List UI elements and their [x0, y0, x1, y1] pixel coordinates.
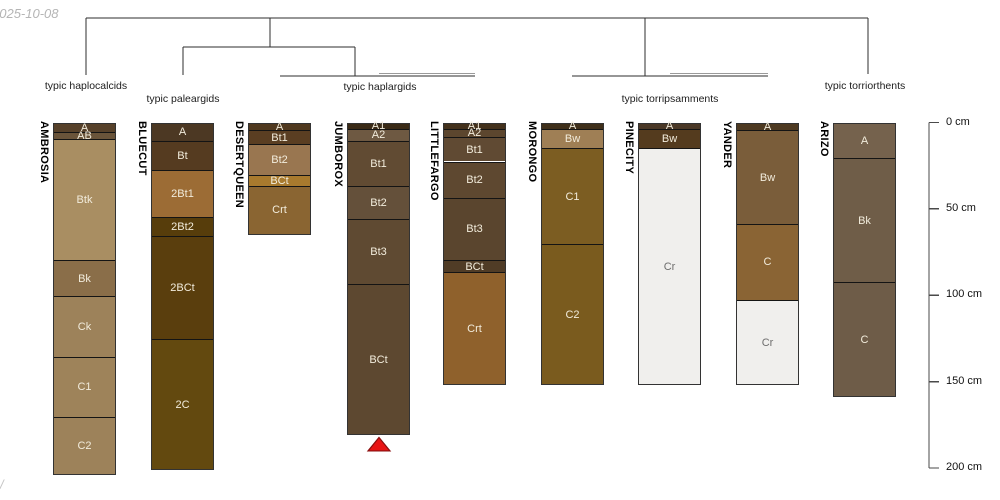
date-watermark: 2025-10-08: [0, 6, 59, 21]
depth-tick-label: 50 cm: [946, 202, 976, 214]
horizon-desertqueen-a: A: [249, 124, 310, 131]
horizon-label: 2C: [175, 399, 189, 411]
profile-column-pinecity: ABwCr: [638, 123, 701, 386]
horizon-label: Cr: [664, 261, 676, 273]
horizon-bluecut-2bt1: 2Bt1: [152, 170, 213, 217]
horizon-label: Bt2: [370, 197, 387, 209]
horizon-label: A: [764, 121, 771, 133]
profile-column-jumborox: A1A2Bt1Bt2Bt3BCt: [347, 123, 410, 436]
horizon-bluecut-2bt2: 2Bt2: [152, 217, 213, 236]
depth-tick-label: 200 cm: [946, 461, 982, 473]
horizon-yander-c: C: [737, 224, 798, 300]
horizon-label: Bt1: [466, 144, 483, 156]
profile-label-arizo: ARIZO: [818, 121, 830, 157]
horizon-pinecity-cr: Cr: [639, 148, 700, 385]
profile-label-pinecity: PINECITY: [623, 121, 635, 174]
group-label-typic-torriorthents: typic torriorthents: [825, 80, 906, 92]
horizon-arizo-a: A: [834, 124, 895, 159]
horizon-yander-bw: Bw: [737, 130, 798, 223]
horizon-yander-cr: Cr: [737, 300, 798, 385]
horizon-yander-a: A: [737, 124, 798, 131]
horizon-label: BCt: [369, 354, 387, 366]
horizon-jumborox-bt1: Bt1: [348, 141, 409, 186]
group-label-typic-haplargids: typic haplargids: [344, 81, 417, 93]
horizon-ambrosia-ck: Ck: [54, 296, 115, 356]
horizon-morongo-c2: C2: [542, 244, 603, 384]
horizon-ambrosia-c2: C2: [54, 417, 115, 474]
horizon-desertqueen-crt: Crt: [249, 186, 310, 234]
horizon-label: Bk: [78, 273, 91, 285]
soil-profile-figure: 2025-10-08 / typic haplocalcidstypic pal…: [0, 0, 1000, 500]
profile-column-littlefargo: A1A2Bt1Bt2Bt3BCtCrt: [443, 123, 506, 386]
horizon-label: AB: [77, 130, 92, 142]
horizon-arizo-bk: Bk: [834, 158, 895, 282]
horizon-littlefargo-bt3: Bt3: [444, 198, 505, 260]
horizon-arizo-c: C: [834, 282, 895, 396]
horizon-morongo-c1: C1: [542, 148, 603, 245]
horizon-label: Crt: [467, 323, 482, 335]
profile-marker-triangle: [368, 437, 390, 451]
depth-tick-label: 150 cm: [946, 375, 982, 387]
horizon-label: Bk: [858, 215, 871, 227]
horizon-label: 2Bt2: [171, 221, 194, 233]
profile-column-bluecut: ABt2Bt12Bt22BCt2C: [151, 123, 214, 471]
horizon-label: Bt2: [466, 174, 483, 186]
horizon-label: C1: [77, 381, 91, 393]
horizon-label: C1: [565, 191, 579, 203]
horizon-label: Bt1: [370, 158, 387, 170]
horizon-label: Btk: [77, 194, 93, 206]
horizon-label: Bw: [662, 133, 677, 145]
horizon-jumborox-bt3: Bt3: [348, 219, 409, 285]
horizon-jumborox-bt2: Bt2: [348, 186, 409, 219]
horizon-label: Crt: [272, 204, 287, 216]
profile-label-jumborox: JUMBOROX: [332, 121, 344, 187]
horizon-label: A: [666, 120, 673, 132]
horizon-bluecut-2c: 2C: [152, 339, 213, 469]
horizon-desertqueen-bt2: Bt2: [249, 144, 310, 175]
horizon-label: A: [861, 135, 868, 147]
horizon-littlefargo-bt1: Bt1: [444, 137, 505, 161]
horizon-label: A2: [372, 129, 385, 141]
horizon-label: C: [861, 334, 869, 346]
horizon-jumborox-bct: BCt: [348, 284, 409, 434]
corner-mark: /: [0, 477, 4, 492]
horizon-label: Bw: [760, 172, 775, 184]
horizon-label: 2Bt1: [171, 188, 194, 200]
profile-column-desertqueen: ABt1Bt2BCtCrt: [248, 123, 311, 236]
profile-label-bluecut: BLUECUT: [136, 121, 148, 176]
horizon-ambrosia-c1: C1: [54, 357, 115, 417]
horizon-label: Bt3: [370, 246, 387, 258]
horizon-littlefargo-crt: Crt: [444, 272, 505, 384]
group-label-typic-torripsamments: typic torripsamments: [622, 93, 719, 105]
profile-column-morongo: ABwC1C2: [541, 123, 604, 386]
horizon-label: Bt3: [466, 223, 483, 235]
horizon-label: A: [179, 126, 186, 138]
horizon-label: Ck: [78, 321, 91, 333]
profile-label-desertqueen: DESERTQUEEN: [233, 121, 245, 208]
horizon-label: A2: [468, 127, 481, 139]
horizon-label: Bt2: [271, 154, 288, 166]
horizon-bluecut-bt: Bt: [152, 141, 213, 170]
horizon-desertqueen-bct: BCt: [249, 175, 310, 185]
profile-column-yander: ABwCCr: [736, 123, 799, 386]
horizon-label: BCt: [270, 175, 288, 187]
horizon-littlefargo-bct: BCt: [444, 260, 505, 272]
horizon-ambrosia-btk: Btk: [54, 139, 115, 260]
horizon-label: Bw: [565, 133, 580, 145]
profile-column-arizo: ABkC: [833, 123, 896, 398]
profile-label-morongo: MORONGO: [526, 121, 538, 182]
horizon-label: A: [569, 120, 576, 132]
horizon-label: Bt: [177, 150, 187, 162]
horizon-label: C2: [77, 440, 91, 452]
horizon-label: 2BCt: [170, 282, 194, 294]
profile-label-ambrosia: AMBROSIA: [38, 121, 50, 183]
horizon-label: BCt: [465, 261, 483, 273]
horizon-ambrosia-bk: Bk: [54, 260, 115, 296]
horizon-desertqueen-bt1: Bt1: [249, 130, 310, 144]
profile-column-ambrosia: AABBtkBkCkC1C2: [53, 123, 116, 476]
depth-tick-label: 0 cm: [946, 116, 970, 128]
horizon-jumborox-a2: A2: [348, 129, 409, 141]
horizon-ambrosia-ab: AB: [54, 132, 115, 139]
group-label-typic-paleargids: typic paleargids: [147, 93, 220, 105]
horizon-label: Bt1: [271, 132, 288, 144]
depth-tick-label: 100 cm: [946, 288, 982, 300]
horizon-bluecut-2bct: 2BCt: [152, 236, 213, 340]
horizon-littlefargo-a2: A2: [444, 129, 505, 138]
horizon-label: C: [764, 256, 772, 268]
group-label-typic-haplocalcids: typic haplocalcids: [45, 80, 127, 92]
horizon-label: Cr: [762, 337, 774, 349]
horizon-label: C2: [565, 309, 579, 321]
profile-label-littlefargo: LITTLEFARGO: [428, 121, 440, 201]
horizon-bluecut-a: A: [152, 124, 213, 141]
profile-label-yander: YANDER: [721, 121, 733, 168]
horizon-littlefargo-bt2: Bt2: [444, 162, 505, 198]
